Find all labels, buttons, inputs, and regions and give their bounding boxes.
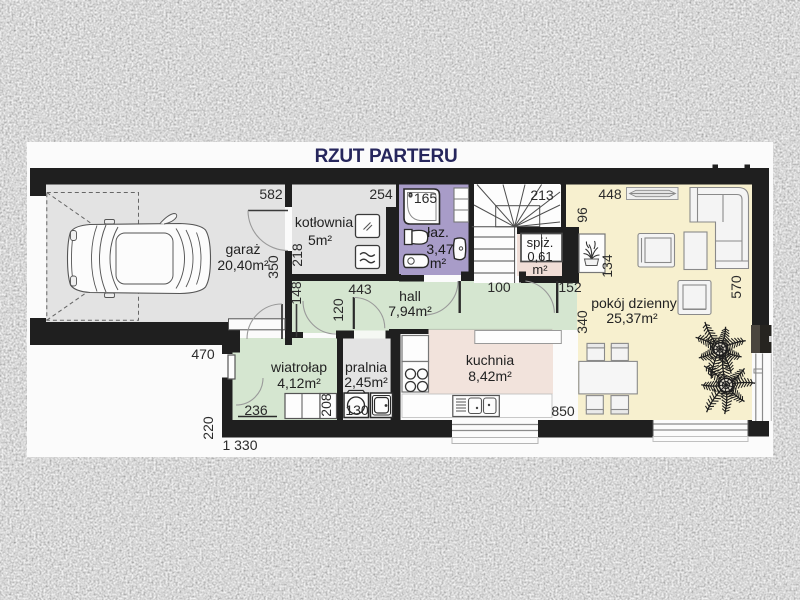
svg-text:pokój dzienny: pokój dzienny — [591, 295, 677, 311]
svg-text:220: 220 — [200, 416, 216, 440]
svg-text:443: 443 — [348, 281, 372, 297]
svg-text:m²: m² — [430, 255, 447, 271]
svg-text:134: 134 — [599, 254, 615, 278]
svg-text:208: 208 — [318, 393, 334, 417]
svg-text:218: 218 — [289, 243, 305, 267]
svg-text:7,94m²: 7,94m² — [388, 303, 432, 319]
svg-text:garaż: garaż — [225, 241, 260, 257]
svg-text:340: 340 — [574, 310, 590, 334]
svg-text:582: 582 — [259, 186, 283, 202]
svg-text:96: 96 — [574, 207, 590, 223]
svg-text:213: 213 — [530, 187, 554, 203]
svg-text:2,45m²: 2,45m² — [344, 374, 388, 390]
svg-text:m²: m² — [532, 262, 548, 277]
svg-text:spiż.: spiż. — [527, 235, 554, 250]
svg-text:łaz.: łaz. — [427, 224, 449, 240]
svg-text:pralnia: pralnia — [345, 359, 387, 375]
svg-text:hall: hall — [399, 288, 421, 304]
svg-text:20,40m²: 20,40m² — [217, 257, 269, 273]
svg-text:100: 100 — [487, 279, 511, 295]
svg-text:kuchnia: kuchnia — [466, 352, 514, 368]
svg-text:120: 120 — [330, 298, 346, 322]
svg-text:25,37m²: 25,37m² — [606, 310, 658, 326]
svg-text:wiatrołap: wiatrołap — [270, 359, 327, 375]
svg-text:5m²: 5m² — [308, 232, 332, 248]
svg-text:570: 570 — [728, 275, 744, 299]
svg-text:130: 130 — [345, 402, 369, 418]
svg-text:4,12m²: 4,12m² — [277, 375, 321, 391]
svg-text:165: 165 — [414, 190, 438, 206]
svg-text:1 330: 1 330 — [222, 437, 257, 453]
svg-text:448: 448 — [598, 186, 622, 202]
svg-text:236: 236 — [244, 402, 268, 418]
svg-text:850: 850 — [551, 403, 575, 419]
svg-text:kotłownia: kotłownia — [295, 214, 354, 230]
svg-text:350: 350 — [265, 255, 281, 279]
svg-text:152: 152 — [558, 279, 582, 295]
svg-text:470: 470 — [191, 346, 215, 362]
svg-text:254: 254 — [369, 186, 393, 202]
svg-text:148: 148 — [288, 281, 304, 305]
svg-text:8,42m²: 8,42m² — [468, 368, 512, 384]
svg-text:RZUT PARTERU: RZUT PARTERU — [315, 146, 458, 167]
